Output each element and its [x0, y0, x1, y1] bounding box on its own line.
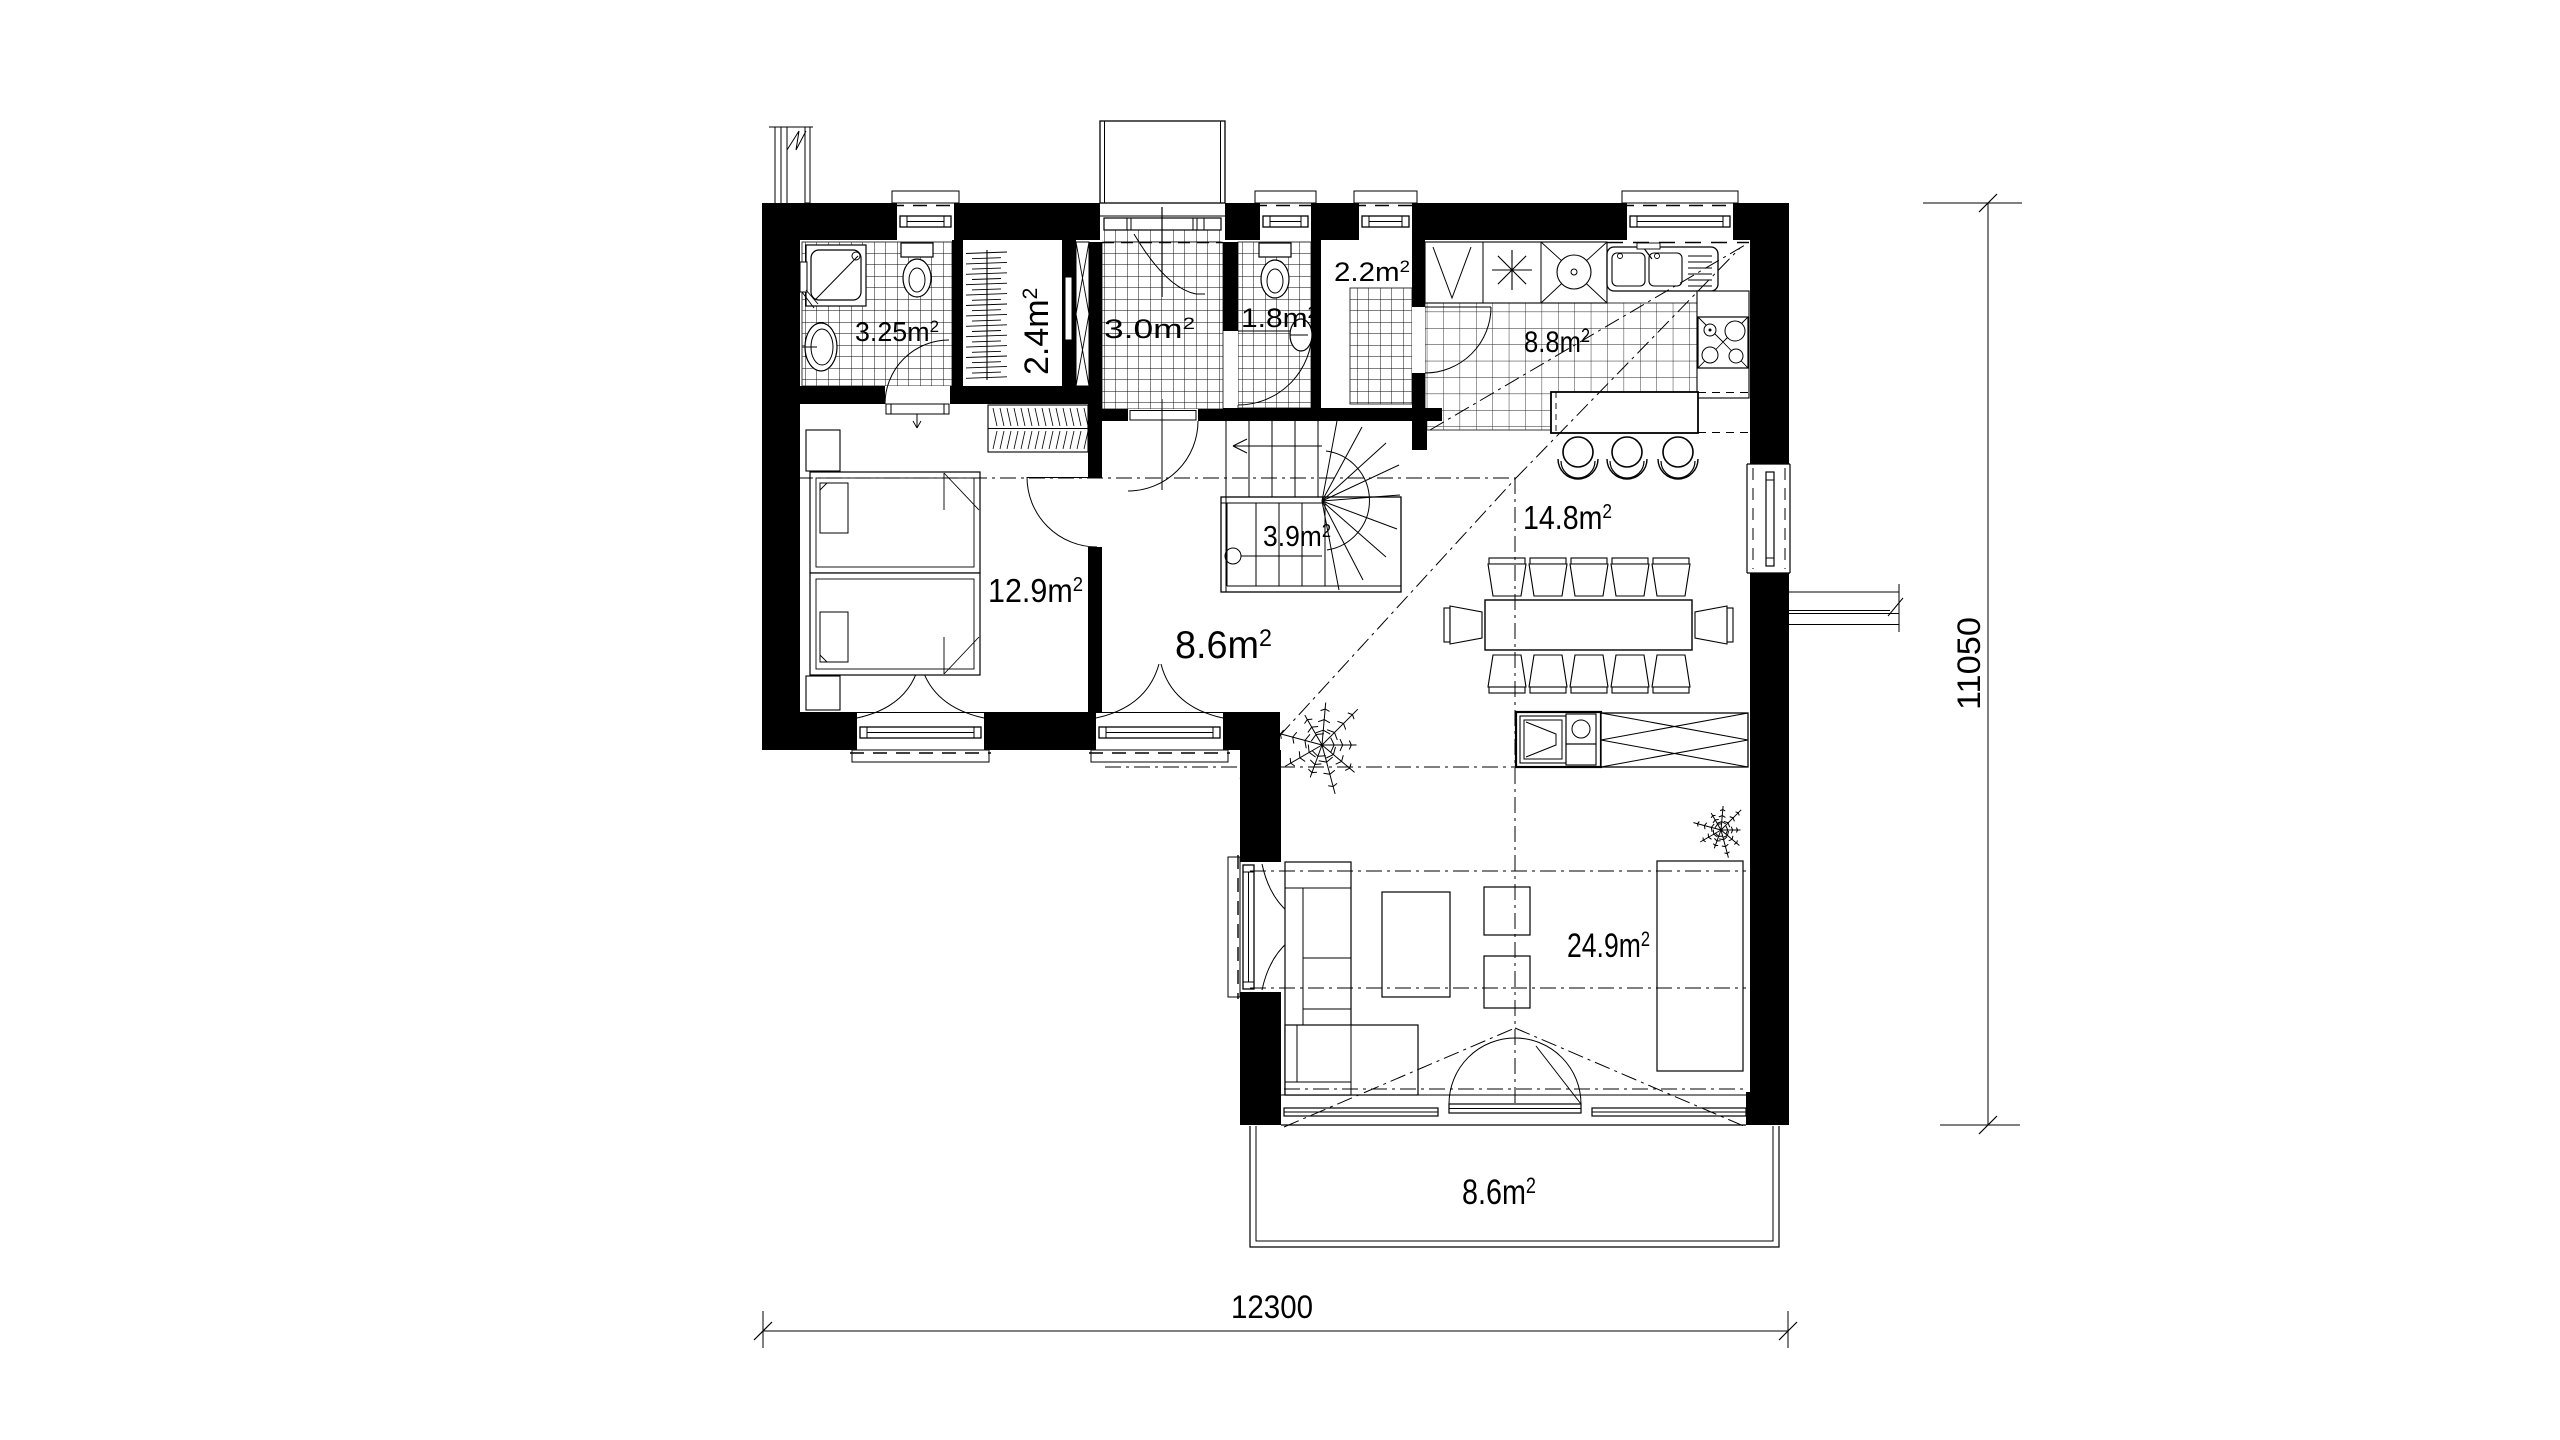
svg-text:3.25m2: 3.25m2 [855, 317, 939, 347]
svg-text:1.8m2: 1.8m2 [1241, 303, 1318, 333]
svg-text:14.8m2: 14.8m2 [1523, 499, 1612, 536]
svg-text:11050: 11050 [1951, 617, 1987, 710]
svg-text:2.4m2: 2.4m2 [1018, 288, 1056, 375]
svg-text:8.6m2: 8.6m2 [1462, 1173, 1536, 1212]
svg-text:2.2m2: 2.2m2 [1334, 257, 1410, 287]
svg-text:12300: 12300 [1231, 1289, 1313, 1325]
svg-text:8.6m2: 8.6m2 [1175, 624, 1272, 667]
svg-text:24.9m2: 24.9m2 [1567, 927, 1650, 965]
svg-text:8.8m2: 8.8m2 [1524, 326, 1590, 359]
svg-text:3.9m2: 3.9m2 [1263, 521, 1331, 553]
svg-text:3.0m2: 3.0m2 [1104, 314, 1195, 344]
svg-text:12.9m2: 12.9m2 [988, 572, 1083, 609]
